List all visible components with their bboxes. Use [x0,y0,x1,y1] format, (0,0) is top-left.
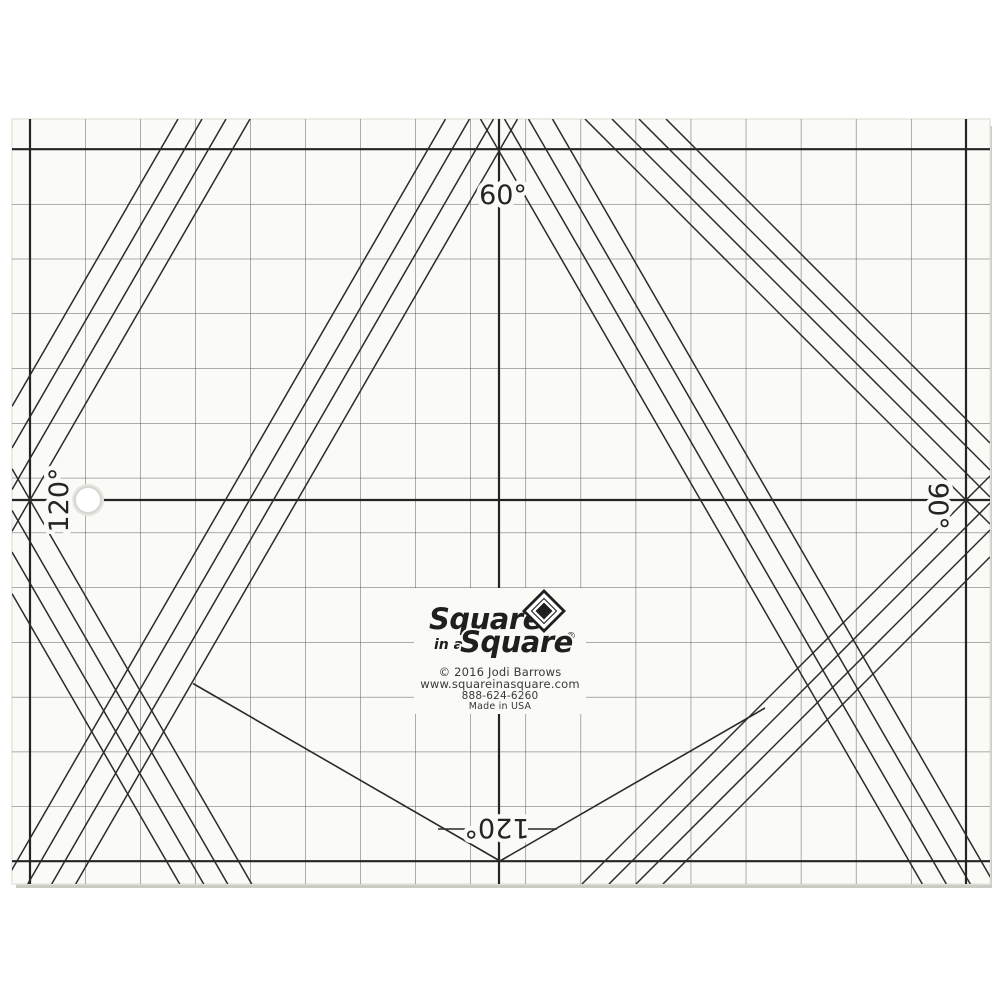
angle-label-120-left: 120° [44,467,75,532]
angle-label-120-bottom: 120° [464,812,529,843]
product-photo: 60° 120° 90° 120° Square ® in a Square ©… [0,0,1000,1000]
made-in-usa-line: Made in USA [469,701,532,712]
angle-label-60-top: 60° [479,180,527,211]
brand-logo: Square ® in a Square © 2016 Jodi Barrows… [414,588,586,714]
website-line: www.squareinasquare.com [420,677,580,691]
printed-markings [4,119,995,884]
punch-hole [73,485,103,515]
ruler-photo-canvas: 60° 120° 90° 120° Square ® in a Square ©… [0,0,1000,1000]
brand-word-in-a: in a [434,637,463,653]
quilting-ruler: 60° 120° 90° 120° Square ® in a Square ©… [4,119,995,888]
angle-label-90-right: 90° [922,482,953,530]
brand-word-square-2: Square [460,625,573,659]
grid-pattern [12,119,990,884]
